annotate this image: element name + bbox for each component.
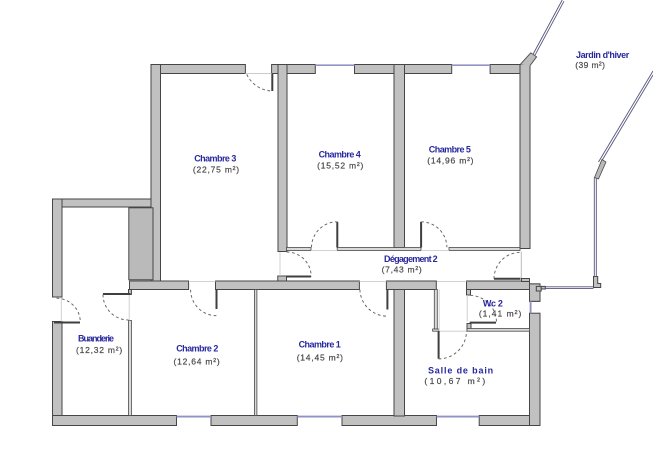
- svg-text:(15,52 m²): (15,52 m²): [317, 160, 364, 170]
- svg-text:Wc 2: Wc 2: [483, 299, 503, 309]
- svg-text:(1,41 m²): (1,41 m²): [479, 309, 522, 319]
- svg-text:Dégagement 2: Dégagement 2: [384, 254, 438, 264]
- svg-text:Chambre 1: Chambre 1: [299, 340, 341, 350]
- svg-text:Chambre 5: Chambre 5: [429, 145, 471, 155]
- svg-text:Chambre 2: Chambre 2: [176, 344, 218, 354]
- svg-text:Salle de bain: Salle de bain: [428, 366, 494, 376]
- svg-text:(12,32 m²): (12,32 m²): [76, 345, 123, 355]
- svg-text:(7,43 m²): (7,43 m²): [382, 265, 423, 275]
- svg-text:(22,75 m²): (22,75 m²): [193, 165, 240, 175]
- svg-text:(12,64 m²): (12,64 m²): [173, 357, 220, 367]
- svg-text:Jardin d'hiver: Jardin d'hiver: [576, 50, 630, 60]
- svg-text:Chambre 3: Chambre 3: [194, 154, 236, 164]
- svg-text:(39 m²): (39 m²): [575, 60, 605, 70]
- svg-text:(14,45 m²): (14,45 m²): [297, 353, 344, 363]
- svg-text:Buanderie: Buanderie: [78, 334, 114, 344]
- svg-text:(10,67 m²): (10,67 m²): [424, 376, 487, 386]
- svg-text:Chambre 4: Chambre 4: [319, 149, 361, 159]
- svg-text:(14,96 m²): (14,96 m²): [427, 156, 474, 166]
